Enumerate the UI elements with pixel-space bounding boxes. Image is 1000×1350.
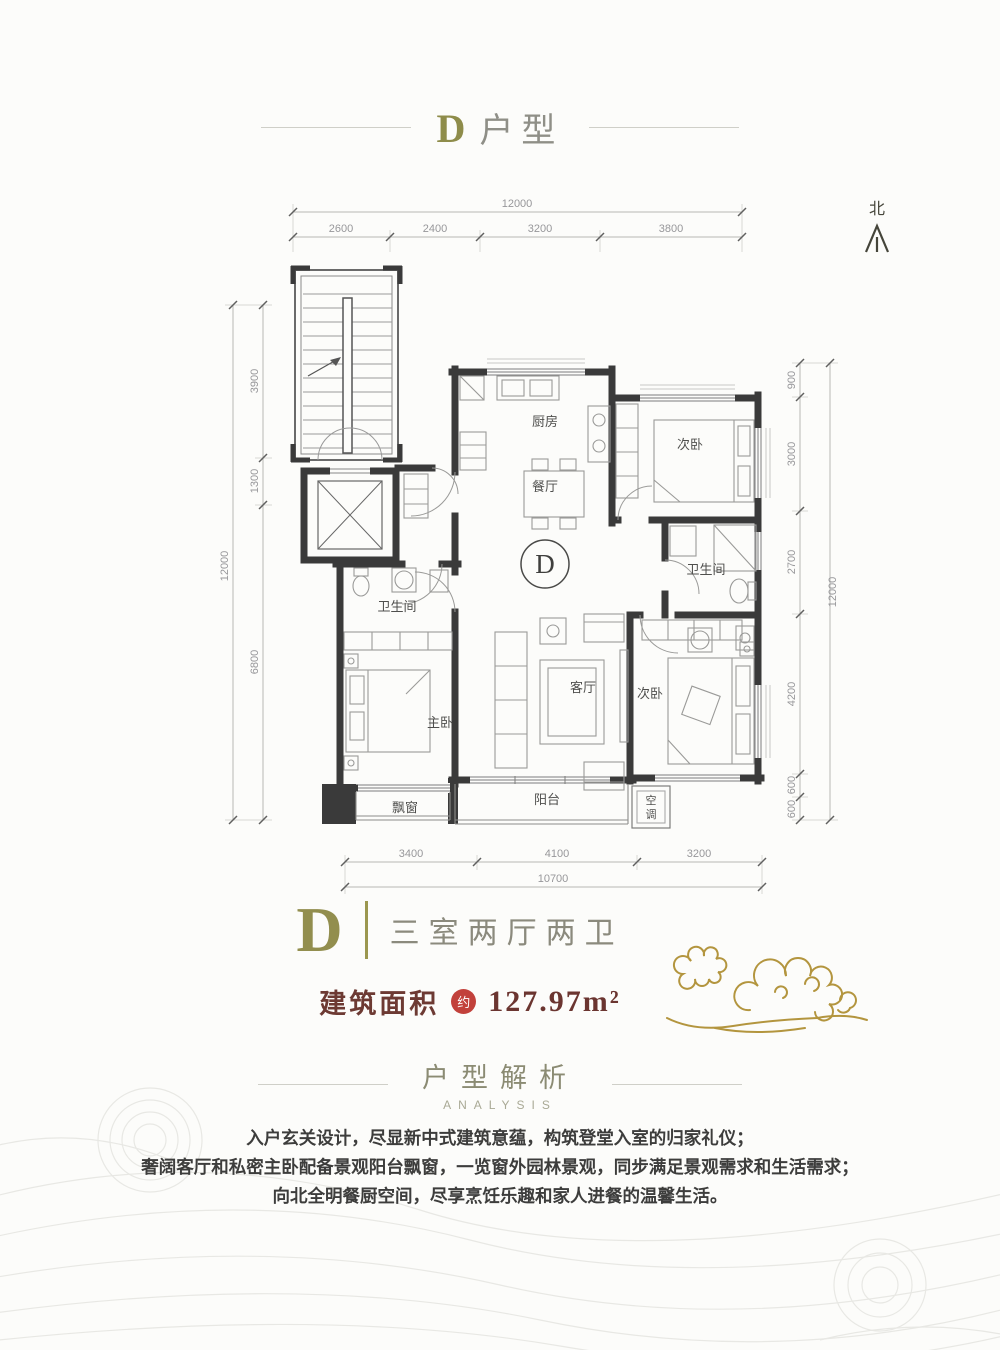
room-label-living: 客厅 — [570, 680, 596, 695]
dim-left-seg-2: 1300 — [249, 469, 261, 493]
room-label-master: 主卧 — [427, 715, 453, 730]
title-letter: D — [437, 105, 466, 152]
analysis-right-line — [612, 1084, 742, 1085]
dim-right-seg-6: 600 — [786, 800, 798, 818]
dim-right-total: 12000 — [827, 577, 839, 608]
dim-left-total: 12000 — [219, 551, 231, 582]
analysis-subheading: ANALYSIS — [422, 1098, 578, 1112]
north-label: 北 — [869, 200, 885, 218]
unit-mark-letter: D — [535, 549, 555, 579]
elevator — [304, 465, 396, 560]
dim-left-seg-1: 3900 — [249, 369, 261, 393]
room-label-kitchen: 厨房 — [532, 414, 558, 429]
analysis-left-line — [258, 1084, 388, 1085]
unit-mark: D — [521, 540, 569, 588]
summary-layout: 三室两厅两卫 — [390, 908, 624, 952]
wave-pattern-decoration — [0, 1080, 1000, 1350]
room-label-ac-2: 调 — [646, 808, 657, 821]
dim-top-total: 12000 — [502, 198, 533, 210]
dim-bottom-total: 10700 — [538, 873, 569, 885]
analysis-heading-row: 户型解析 ANALYSIS — [0, 1056, 1000, 1112]
dim-top-seg-4: 3800 — [659, 223, 683, 235]
room-label-ac-1: 空 — [646, 793, 657, 807]
dim-right-seg-3: 2700 — [786, 550, 798, 574]
room-label-bath-left: 卫生间 — [377, 599, 416, 614]
area-row: 建筑面积 约 127.97m² — [0, 982, 970, 1021]
dim-bottom-seg-3: 3200 — [687, 848, 711, 860]
area-value: 127.97m² — [488, 985, 620, 1019]
summary-divider — [365, 901, 368, 959]
description-line-3: 向北全明餐厨空间，尽享烹饪乐趣和家人进餐的温馨生活。 — [0, 1182, 1000, 1211]
dim-right-seg-5: 600 — [786, 776, 798, 794]
description-line-1: 入户玄关设计，尽显新中式建筑意蕴，构筑登堂入室的归家礼仪； — [0, 1124, 1000, 1153]
approx-seal: 约 — [451, 989, 476, 1014]
room-label-bath-right: 卫生间 — [686, 562, 725, 577]
description: 入户玄关设计，尽显新中式建筑意蕴，构筑登堂入室的归家礼仪； 奢阔客厅和私密主卧配… — [0, 1124, 1000, 1211]
room-label-bay-window: 飘窗 — [392, 800, 418, 815]
dim-top-seg-3: 3200 — [528, 223, 552, 235]
page-title: D 户型 — [0, 102, 1000, 152]
north-arrow-icon — [866, 226, 888, 252]
north-indicator: 北 — [866, 200, 888, 252]
description-line-2: 奢阔客厅和私密主卧配备景观阳台飘窗，一览窗外园林景观，同步满足景观需求和生活需求… — [0, 1153, 1000, 1182]
title-right-line — [589, 127, 739, 128]
title-left-line — [261, 127, 411, 128]
dim-right-seg-4: 4200 — [786, 682, 798, 706]
dim-right-seg-1: 900 — [786, 371, 798, 389]
area-label: 建筑面积 — [319, 982, 439, 1021]
room-label-balcony: 阳台 — [534, 792, 560, 807]
wall-corner-block — [322, 784, 356, 824]
stairwell — [291, 266, 402, 462]
dim-top-seg-1: 2600 — [329, 223, 353, 235]
room-label-bedroom-top: 次卧 — [677, 437, 703, 452]
summary: D 三室两厅两卫 — [0, 898, 960, 962]
dim-bottom-seg-2: 4100 — [545, 848, 569, 860]
floor-plan: 12000 2600 2400 3200 3800 12000 3900 130… — [0, 180, 1000, 920]
room-label-bedroom-bottom: 次卧 — [637, 686, 663, 701]
dim-bottom-seg-1: 3400 — [399, 848, 423, 860]
title-text: 户型 — [479, 103, 563, 152]
dim-top-seg-2: 2400 — [423, 223, 447, 235]
analysis-heading: 户型解析 — [422, 1056, 578, 1095]
dim-left-seg-3: 6800 — [249, 650, 261, 674]
room-label-dining: 餐厅 — [532, 479, 558, 494]
summary-letter: D — [296, 898, 342, 962]
dim-right-seg-2: 3000 — [786, 442, 798, 466]
